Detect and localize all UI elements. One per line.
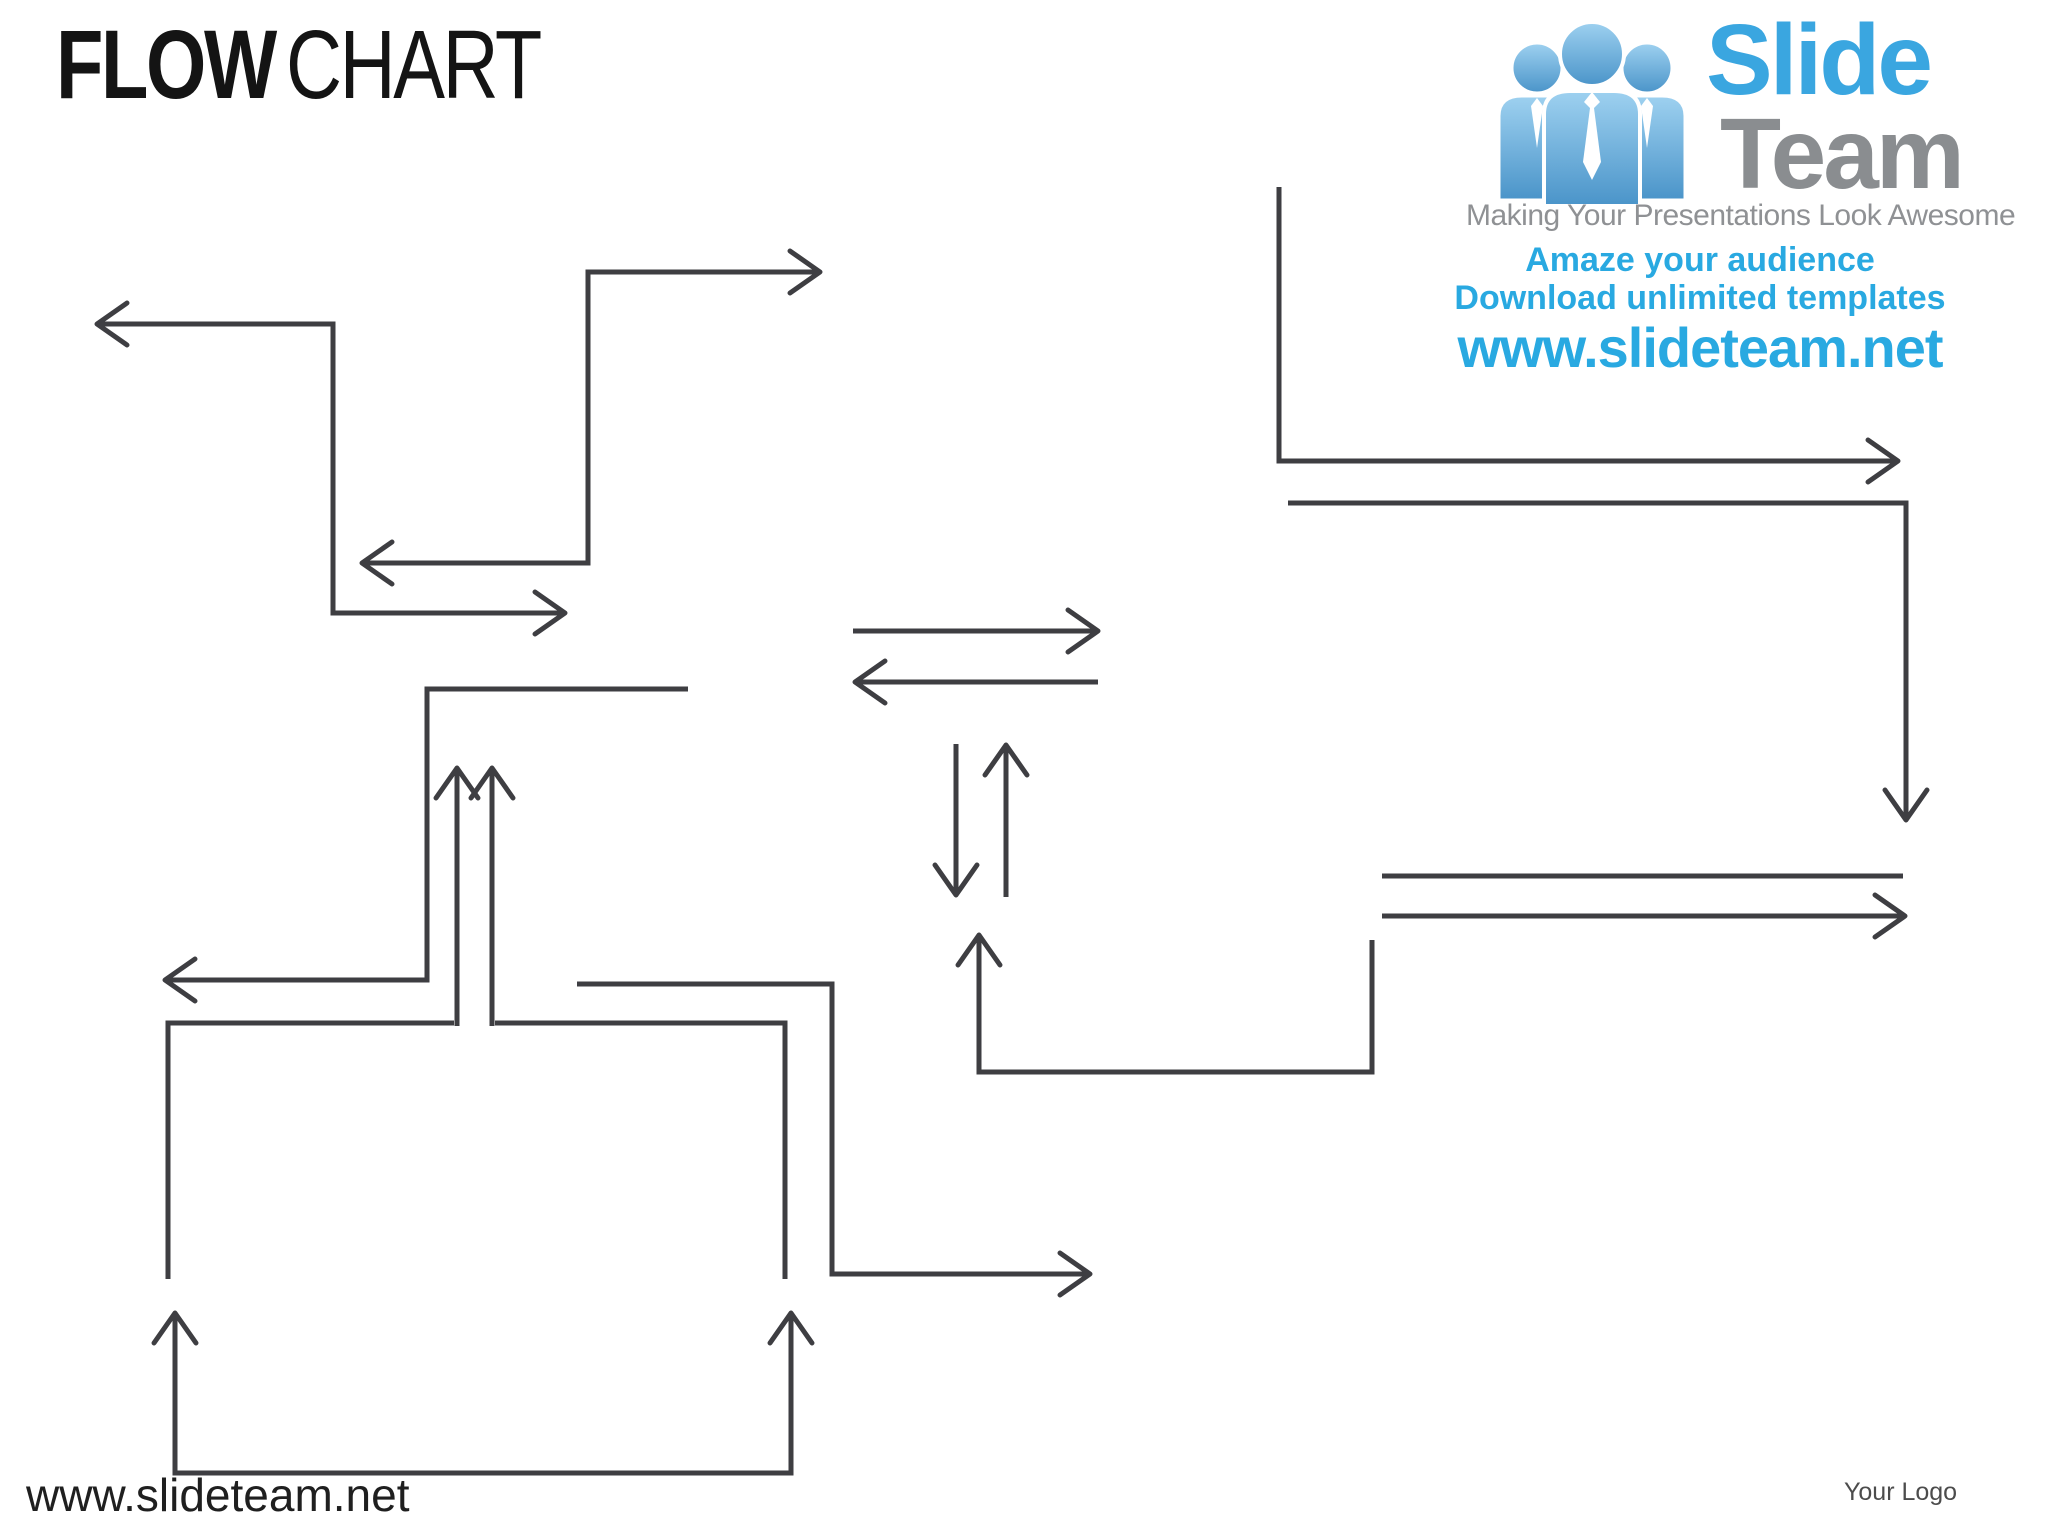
connector-line bbox=[495, 1023, 785, 1279]
connector-line bbox=[165, 689, 688, 980]
connector-line bbox=[1288, 503, 1906, 820]
connector-c3 bbox=[165, 689, 688, 1001]
connector-c12 bbox=[935, 744, 977, 895]
connector-c13 bbox=[985, 745, 1027, 897]
connector-line bbox=[168, 1023, 454, 1279]
connector-c9 bbox=[154, 1313, 812, 1473]
connector-c11 bbox=[855, 661, 1098, 703]
connector-c18 bbox=[958, 935, 1372, 1072]
connector-line bbox=[577, 984, 1090, 1274]
logo-brand-team: Team bbox=[1720, 104, 1962, 204]
connector-c15 bbox=[1288, 503, 1927, 820]
slideteam-people-icon bbox=[1492, 14, 1692, 206]
logo-brand-slide: Slide bbox=[1706, 10, 1930, 110]
connector-c6 bbox=[168, 1023, 454, 1279]
title-bold-word: FLOW bbox=[56, 10, 275, 119]
connector-c8 bbox=[577, 984, 1090, 1295]
connector-c5 bbox=[471, 768, 513, 1026]
title-regular-word: CHART bbox=[286, 10, 540, 119]
promo-url-link[interactable]: www.slideteam.net bbox=[1400, 317, 2000, 379]
logo-promo-block: Amaze your audience Download unlimited t… bbox=[1400, 241, 2000, 379]
promo-line-2: Download unlimited templates bbox=[1400, 279, 2000, 317]
your-logo-placeholder: Your Logo bbox=[1844, 1478, 1957, 1507]
connector-line bbox=[175, 1313, 791, 1473]
connector-line bbox=[362, 272, 820, 563]
connector-line bbox=[97, 324, 565, 613]
connector-c2 bbox=[362, 251, 820, 584]
promo-line-1: Amaze your audience bbox=[1400, 241, 2000, 279]
connector-c10 bbox=[853, 610, 1098, 652]
connector-line bbox=[979, 935, 1372, 1072]
connector-c4 bbox=[436, 768, 478, 1026]
footer-site-url-link[interactable]: www.slideteam.net bbox=[26, 1468, 410, 1522]
page-title: FLOWCHART bbox=[56, 16, 540, 113]
connector-c17 bbox=[1382, 895, 1905, 937]
slide-canvas: { "slide": { "background": "#ffffff" }, … bbox=[0, 0, 2048, 1536]
logo-tagline: Making Your Presentations Look Awesome bbox=[1466, 199, 2015, 233]
connector-c1 bbox=[97, 303, 565, 634]
connector-c7 bbox=[495, 1023, 785, 1279]
